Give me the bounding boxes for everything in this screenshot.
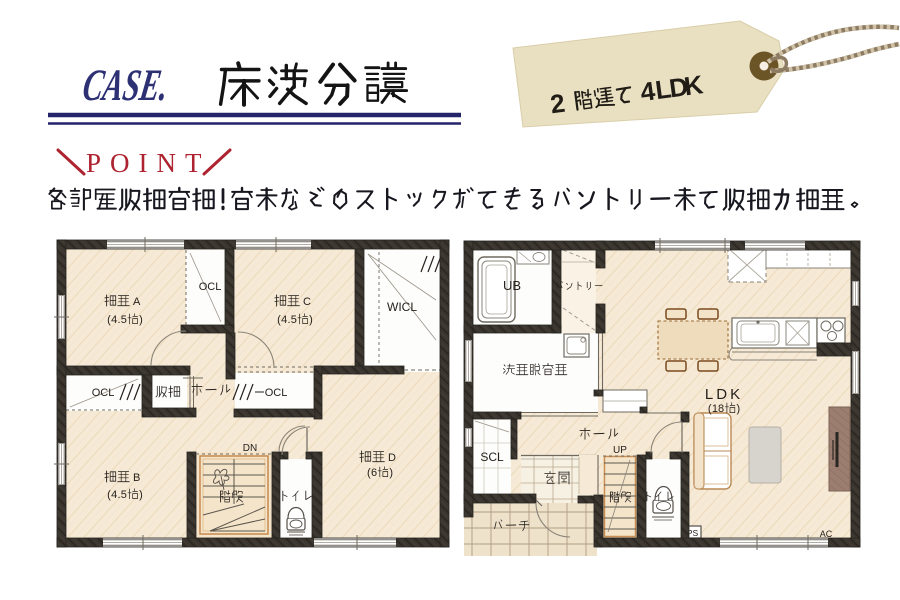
svg-text:LDK: LDK — [705, 386, 743, 403]
svg-text:POINT: POINT — [86, 148, 211, 178]
svg-text:5: 5 — [291, 314, 297, 326]
svg-text:UP: UP — [613, 445, 627, 456]
svg-text:WICL: WICL — [387, 300, 417, 314]
svg-text:AC: AC — [820, 529, 833, 539]
svg-text:): ) — [309, 314, 313, 326]
svg-text:4: 4 — [111, 314, 117, 326]
svg-text:5: 5 — [121, 489, 127, 501]
svg-text:A: A — [133, 296, 141, 308]
svg-text:UB: UB — [503, 278, 521, 293]
svg-text:): ) — [736, 403, 740, 415]
svg-text:): ) — [389, 467, 393, 479]
svg-text:): ) — [139, 314, 143, 326]
svg-text:8: 8 — [718, 403, 724, 415]
svg-text:OCL: OCL — [265, 387, 288, 399]
svg-text:4: 4 — [111, 489, 117, 501]
svg-text:DN: DN — [243, 443, 257, 454]
svg-text:CASE.: CASE. — [79, 62, 172, 111]
svg-text:): ) — [139, 489, 143, 501]
svg-text:C: C — [303, 296, 311, 308]
svg-text:SCL: SCL — [480, 450, 504, 464]
svg-text:OCL: OCL — [199, 281, 222, 293]
svg-text:1: 1 — [712, 403, 718, 415]
svg-text:OCL: OCL — [92, 387, 115, 399]
svg-text:5: 5 — [121, 314, 127, 326]
svg-text:D: D — [388, 452, 396, 464]
svg-text:B: B — [133, 472, 140, 484]
svg-text:4: 4 — [281, 314, 287, 326]
svg-text:6: 6 — [371, 467, 377, 479]
